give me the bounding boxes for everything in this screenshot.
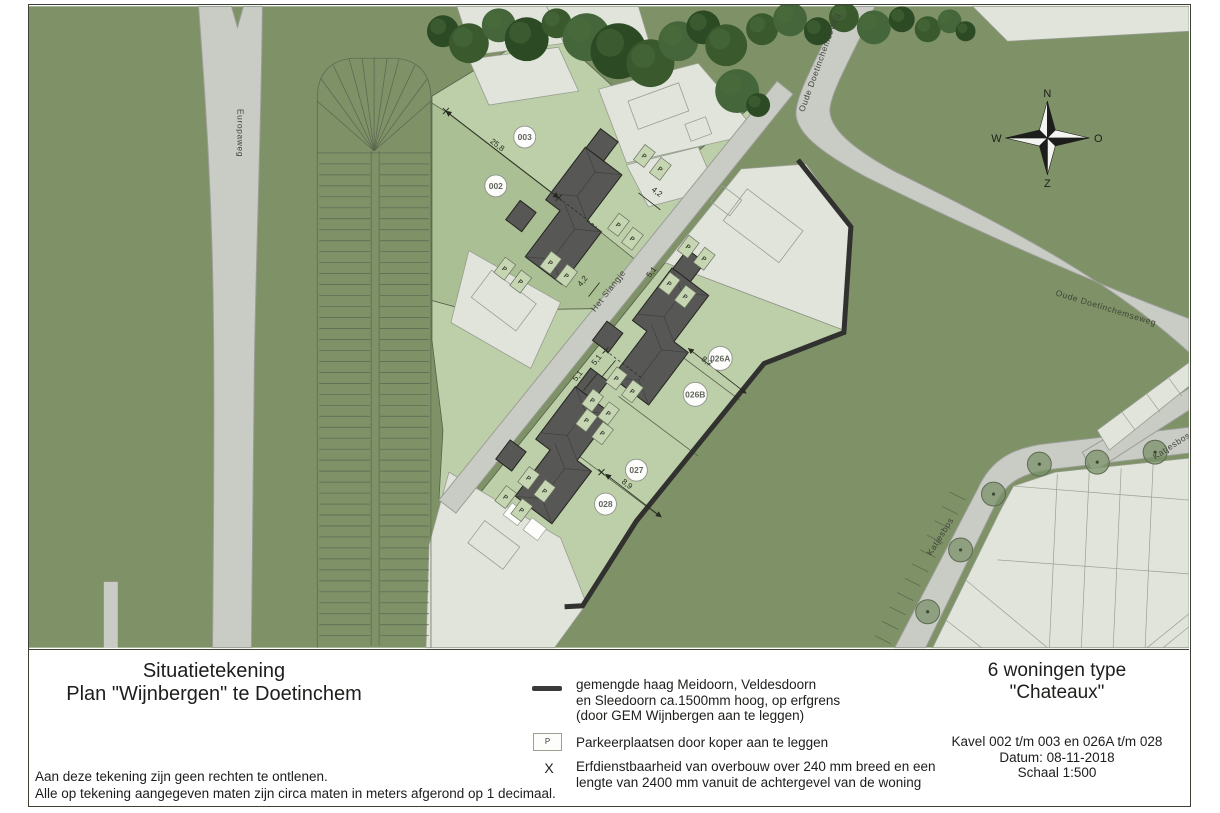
tree-highlight (453, 27, 473, 47)
kavel-label-028: 028 (595, 493, 617, 515)
kavel-label-026B: 026B (683, 382, 707, 406)
site-plan-map: PPPPPPPPPPPPPPPPPPPPPP Europaweg Oude Do… (29, 5, 1189, 650)
compass-east: O (1094, 133, 1103, 145)
drawing-sheet: PPPPPPPPPPPPPPPPPPPPPP Europaweg Oude Do… (28, 4, 1191, 807)
legend-easement-symbol: X (539, 760, 559, 776)
legend-hedge-line2: en Sleedoorn ca.1500mm hoog, op erfgrens (576, 693, 840, 709)
svg-text:027: 027 (629, 465, 643, 475)
path-bottom-left (104, 582, 118, 648)
compass-south: Z (1044, 178, 1051, 190)
tree-highlight (891, 9, 904, 22)
tree-highlight (662, 25, 682, 45)
note-line1: Aan deze tekening zijn geen rechten te o… (35, 769, 556, 786)
tree-highlight (567, 18, 591, 42)
drawing-title-line2: Plan "Wijnbergen" te Doetinchem (39, 683, 389, 706)
project-scale: Schaal 1:500 (937, 765, 1177, 781)
project-date: Datum: 08-11-2018 (937, 750, 1177, 766)
tree-highlight (509, 22, 531, 44)
legend-parking-text: Parkeerplaatsen door koper aan te leggen (576, 735, 828, 751)
kavel-label-027: 027 (625, 459, 647, 481)
tree-highlight (720, 74, 742, 96)
tree-highlight (485, 12, 502, 29)
kavel-label-002: 002 (485, 175, 507, 197)
legend-easement-text: Erfdienstbaarheid van overbouw over 240 … (576, 759, 935, 790)
note-line2: Alle op tekening aangegeven maten zijn c… (35, 786, 556, 803)
legend-hedge-swatch (532, 686, 562, 691)
svg-text:026B: 026B (685, 389, 705, 399)
tree-highlight (958, 23, 968, 33)
compass-west: W (991, 133, 1002, 145)
project-title-line2: "Chateaux" (937, 682, 1177, 704)
compass-north: N (1043, 88, 1051, 100)
legend-hedge-line1: gemengde haag Meidoorn, Veldesdoorn (576, 677, 840, 693)
tree-highlight (776, 6, 793, 23)
legend-easement-line2: lengte van 2400 mm vanuit de achtergevel… (576, 775, 935, 791)
tree-highlight (709, 28, 730, 49)
tree-highlight (430, 18, 446, 34)
street-tree-trunk (1096, 461, 1099, 464)
svg-text:028: 028 (598, 499, 612, 509)
tree-highlight (940, 12, 952, 24)
tree-highlight (690, 14, 707, 31)
drawing-notes: Aan deze tekening zijn geen rechten te o… (35, 769, 556, 802)
project-kavel-info: Kavel 002 t/m 003 en 026A t/m 028 (937, 734, 1177, 750)
tree-highlight (807, 20, 821, 34)
street-label-europaweg: Europaweg (235, 109, 245, 157)
street-tree-trunk (992, 492, 995, 495)
svg-text:002: 002 (489, 181, 503, 191)
svg-text:003: 003 (518, 132, 532, 142)
tree-highlight (749, 95, 761, 107)
tree-highlight (631, 44, 655, 68)
tree-highlight (596, 29, 624, 57)
legend-hedge-line3: (door GEM Wijnbergen aan te leggen) (576, 708, 840, 724)
project-title: 6 woningen type "Chateaux" (937, 660, 1177, 704)
street-tree-trunk (1038, 463, 1041, 466)
tree-highlight (860, 14, 877, 31)
tree-highlight (917, 19, 930, 32)
drawing-title-line1: Situatietekening (39, 660, 389, 683)
legend-parking-symbol: P (533, 733, 562, 751)
legend-hedge-text: gemengde haag Meidoorn, Veldesdoorn en S… (576, 677, 840, 724)
tree-highlight (545, 11, 560, 26)
street-tree-trunk (959, 548, 962, 551)
street-tree-trunk (926, 610, 929, 613)
drawing-sheet-page: PPPPPPPPPPPPPPPPPPPPPP Europaweg Oude Do… (0, 0, 1220, 813)
project-meta: Kavel 002 t/m 003 en 026A t/m 028 Datum:… (937, 734, 1177, 781)
project-title-line1: 6 woningen type (937, 660, 1177, 682)
drawing-title: Situatietekening Plan "Wijnbergen" te Do… (39, 660, 389, 706)
site-plan-svg: PPPPPPPPPPPPPPPPPPPPPP Europaweg Oude Do… (29, 5, 1189, 649)
kavel-label-003: 003 (514, 126, 536, 148)
tree-highlight (749, 17, 765, 33)
legend-easement-line1: Erfdienstbaarheid van overbouw over 240 … (576, 759, 935, 775)
